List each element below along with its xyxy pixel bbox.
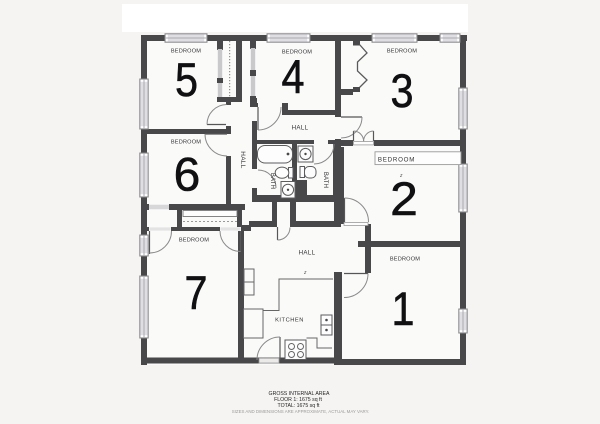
svg-text:5: 5	[175, 55, 198, 107]
svg-text:1: 1	[391, 284, 414, 336]
svg-text:GROSS INTERNAL AREA: GROSS INTERNAL AREA	[269, 391, 330, 397]
svg-text:BEDROOM: BEDROOM	[171, 140, 201, 146]
svg-text:BEDROOM: BEDROOM	[378, 157, 415, 164]
svg-text:4: 4	[281, 52, 304, 104]
svg-text:BEDROOM: BEDROOM	[390, 257, 420, 263]
svg-text:2: 2	[390, 173, 418, 225]
svg-text:BATH: BATH	[269, 173, 275, 189]
svg-text:HALL: HALL	[299, 250, 316, 257]
svg-text:HALL: HALL	[239, 151, 246, 169]
svg-text:KITCHEN: KITCHEN	[275, 318, 304, 324]
svg-text:SIZES AND DIMENSIONS ARE APPRO: SIZES AND DIMENSIONS ARE APPROXIMATE, AC…	[232, 409, 369, 414]
svg-text:BEDROOM: BEDROOM	[387, 49, 417, 55]
svg-text:z: z	[399, 173, 403, 179]
svg-text:3: 3	[390, 66, 413, 118]
svg-text:6: 6	[174, 149, 201, 201]
svg-text:BEDROOM: BEDROOM	[171, 49, 201, 55]
svg-text:7: 7	[184, 268, 207, 320]
svg-text:BEDROOM: BEDROOM	[179, 238, 209, 244]
svg-text:BATH: BATH	[322, 172, 328, 188]
svg-text:z: z	[303, 270, 307, 276]
svg-text:HALL: HALL	[292, 125, 309, 132]
